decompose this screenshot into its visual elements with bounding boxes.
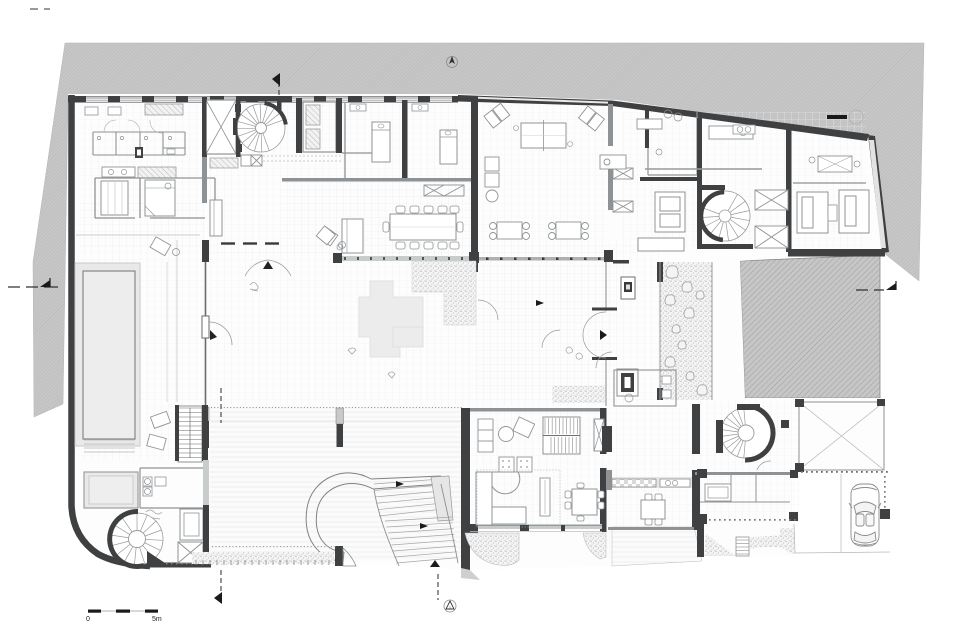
svg-text:0: 0 bbox=[86, 616, 90, 623]
svg-text:5m: 5m bbox=[152, 616, 162, 623]
